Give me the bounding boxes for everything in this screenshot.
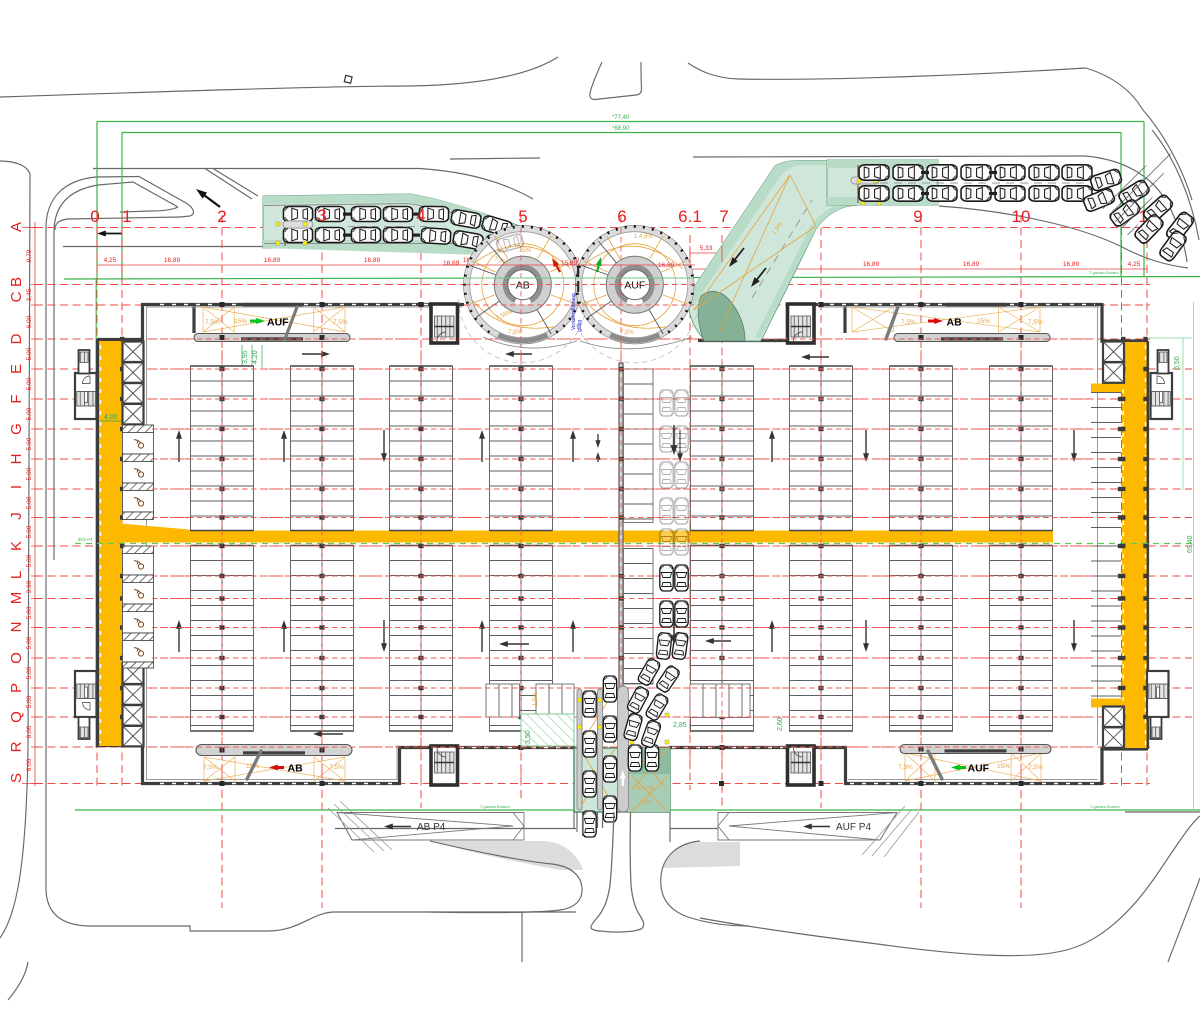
svg-text:0: 0 [90,207,99,226]
svg-text:E: E [8,364,25,374]
svg-text:7,5%: 7,5% [508,330,522,336]
svg-text:B: B [8,277,25,287]
svg-text:AB: AB [947,317,963,329]
svg-text:15,89: 15,89 [561,260,578,267]
svg-text:16,89: 16,89 [963,261,980,268]
svg-text:3,95: 3,95 [242,350,249,364]
svg-text:5,33: 5,33 [700,245,713,252]
svg-text:AUF: AUF [624,280,645,292]
svg-text:T-garaza Bodant: T-garaza Bodant [1090,804,1120,809]
svg-text:5,00: 5,00 [26,606,33,619]
svg-text:7,5%: 7,5% [638,800,652,806]
svg-text:AB P4: AB P4 [417,822,446,833]
svg-text:F: F [8,394,25,403]
svg-text:T-garaza Bodant: T-garaza Bodant [1089,270,1119,275]
svg-text:2,85: 2,85 [673,722,687,729]
svg-text:69,40: 69,40 [1187,535,1194,553]
svg-text:AUF: AUF [267,317,289,329]
svg-text:AB: AB [516,280,530,292]
svg-text:16,89: 16,89 [364,257,381,264]
svg-text:5,00: 5,00 [26,467,33,480]
svg-text:7,5%: 7,5% [329,764,344,771]
svg-text:5,00: 5,00 [26,496,33,509]
svg-text:R: R [8,741,25,752]
svg-text:16,89: 16,89 [443,260,460,267]
svg-text:7: 7 [719,207,728,226]
svg-text:7,5%: 7,5% [203,764,218,771]
svg-text:D: D [8,333,25,344]
svg-text:A: A [8,222,25,232]
svg-text:K: K [8,541,25,551]
svg-text:4,20: 4,20 [252,350,259,364]
svg-text:12,7%: 12,7% [637,786,655,792]
svg-text:S: S [8,773,25,783]
svg-text:15%: 15% [234,318,247,325]
svg-text:AB: AB [288,763,304,775]
svg-text:7,5%: 7,5% [1028,319,1043,326]
svg-text:*77,40: *77,40 [612,115,630,121]
svg-text:5,00: 5,00 [26,525,33,538]
svg-text:60m P4: 60m P4 [78,537,93,542]
svg-text:6,00: 6,00 [26,315,33,328]
svg-text:5,00: 5,00 [26,407,33,420]
svg-text:5,00: 5,00 [26,666,33,679]
svg-text:J: J [8,512,25,520]
svg-text:6.1: 6.1 [678,207,702,226]
svg-text:C: C [8,291,25,302]
svg-text:AUF P4: AUF P4 [836,822,871,833]
svg-text:3,45: 3,45 [26,288,33,301]
svg-text:1 4,5%: 1 4,5% [634,234,653,240]
svg-text:16,89: 16,89 [264,257,281,264]
svg-text:7,5%: 7,5% [205,319,220,326]
svg-text:P: P [8,683,25,693]
svg-text:5,00: 5,00 [26,695,33,708]
svg-text:5,00: 5,00 [26,554,33,567]
svg-text:2,60: 2,60 [777,717,784,731]
svg-text:3,90: 3,90 [26,580,33,593]
svg-text:3,50: 3,50 [525,730,532,744]
svg-text:G: G [8,423,25,435]
svg-text:5,00: 5,00 [26,437,33,450]
svg-text:6,00: 6,00 [26,725,33,738]
svg-text:7,5%: 7,5% [620,330,634,336]
svg-text:4: 4 [416,206,425,225]
svg-text:4,00: 4,00 [104,414,118,421]
svg-text:*68,90: *68,90 [612,126,630,132]
svg-text:0,50: 0,50 [1174,356,1181,370]
svg-text:T-garaza Bodant: T-garaza Bodant [480,804,510,809]
svg-text:6: 6 [617,207,626,226]
svg-text:4,25: 4,25 [104,257,117,264]
svg-text:5,00: 5,00 [26,636,33,649]
svg-text:O: O [8,652,25,664]
svg-text:16,89: 16,89 [658,262,675,269]
svg-text:15%: 15% [977,318,990,325]
svg-text:15%: 15% [997,763,1010,770]
svg-text:L: L [8,571,25,579]
svg-text:N: N [8,622,25,633]
svg-text:7,5%: 7,5% [898,764,913,771]
svg-text:15%: 15% [519,248,532,254]
svg-text:5,00: 5,00 [26,377,33,390]
svg-text:7,5%: 7,5% [333,319,348,326]
svg-text:Q: Q [8,711,25,723]
svg-text:16,89: 16,89 [863,261,880,268]
svg-text:gültig: gültig [577,320,583,332]
svg-text:9,70: 9,70 [26,249,33,262]
svg-text:5: 5 [518,207,527,226]
svg-text:4,25: 4,25 [1128,261,1141,268]
svg-text:2: 2 [217,207,226,226]
svg-text:1,5%: 1,5% [533,692,539,706]
svg-text:7,5%: 7,5% [1028,764,1043,771]
svg-text:M: M [8,592,25,605]
svg-text:9: 9 [913,207,922,226]
svg-text:5,00: 5,00 [26,347,33,360]
svg-text:I: I [8,485,25,489]
svg-text:6,00: 6,00 [26,758,33,771]
svg-text:16,89: 16,89 [164,257,181,264]
svg-text:16,89: 16,89 [1063,261,1080,268]
svg-text:10: 10 [1012,207,1031,226]
svg-text:7,5%: 7,5% [901,319,916,326]
svg-text:AUF: AUF [968,763,990,775]
svg-text:1: 1 [122,207,131,226]
svg-text:3: 3 [317,206,326,225]
svg-text:H: H [8,454,25,465]
